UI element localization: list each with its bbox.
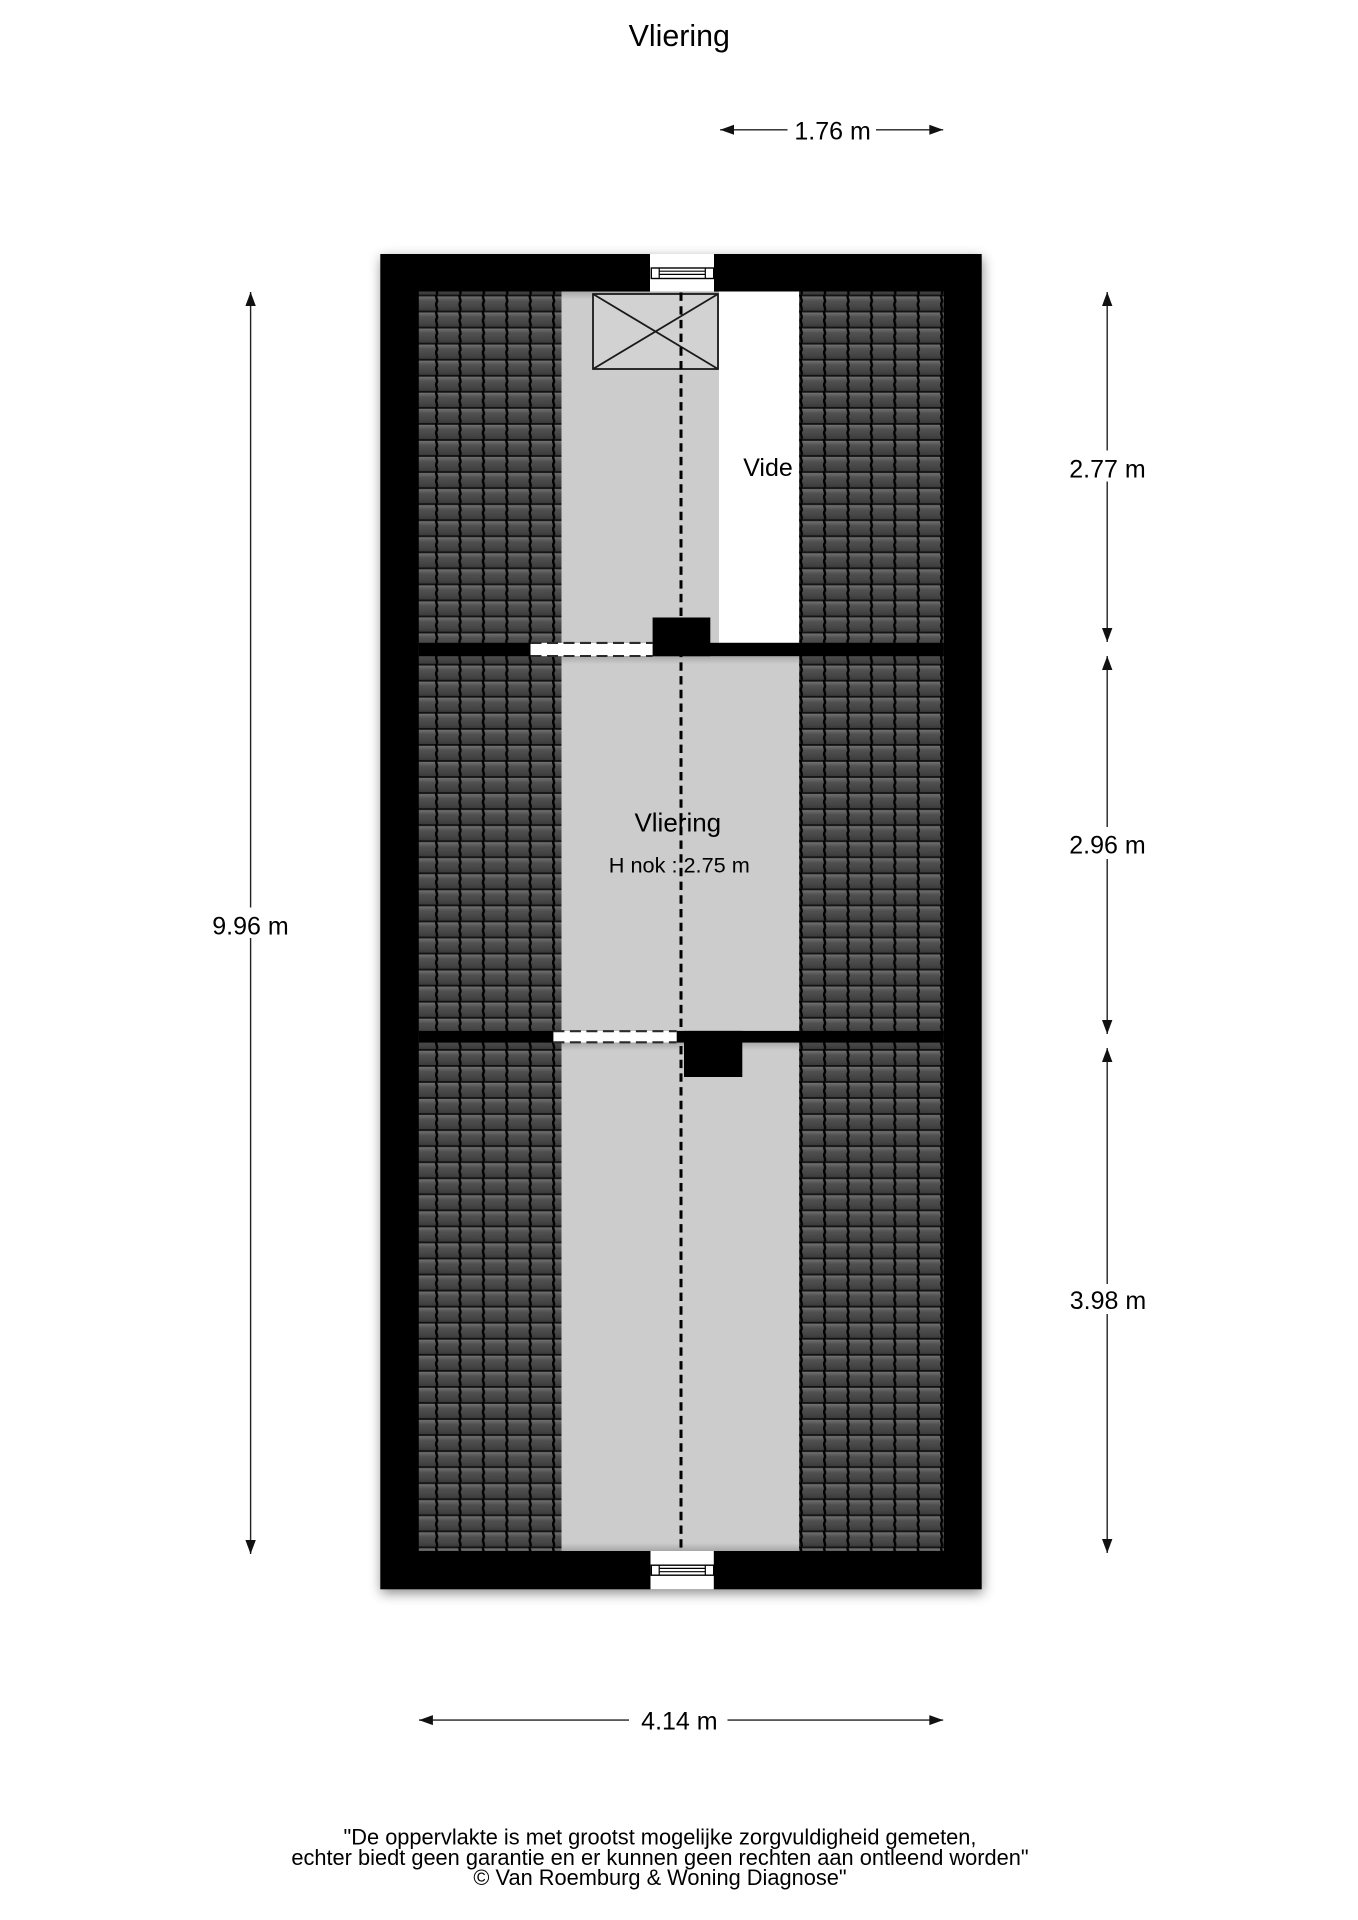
svg-text:2.77 m: 2.77 m [1069,456,1145,484]
svg-text:4.14 m: 4.14 m [641,1707,717,1735]
svg-text:Vliering: Vliering [629,19,730,53]
svg-text:3.98 m: 3.98 m [1070,1287,1146,1315]
svg-text:2.96 m: 2.96 m [1069,832,1145,860]
svg-text:© Van Roemburg & Woning Diagno: © Van Roemburg & Woning Diagnose" [473,1865,846,1890]
svg-text:H nok : 2.75 m: H nok : 2.75 m [609,853,750,878]
svg-text:1.76 m: 1.76 m [794,117,870,145]
svg-text:Vliering: Vliering [634,808,721,838]
svg-text:Vide: Vide [743,454,793,482]
svg-text:9.96 m: 9.96 m [212,913,288,941]
